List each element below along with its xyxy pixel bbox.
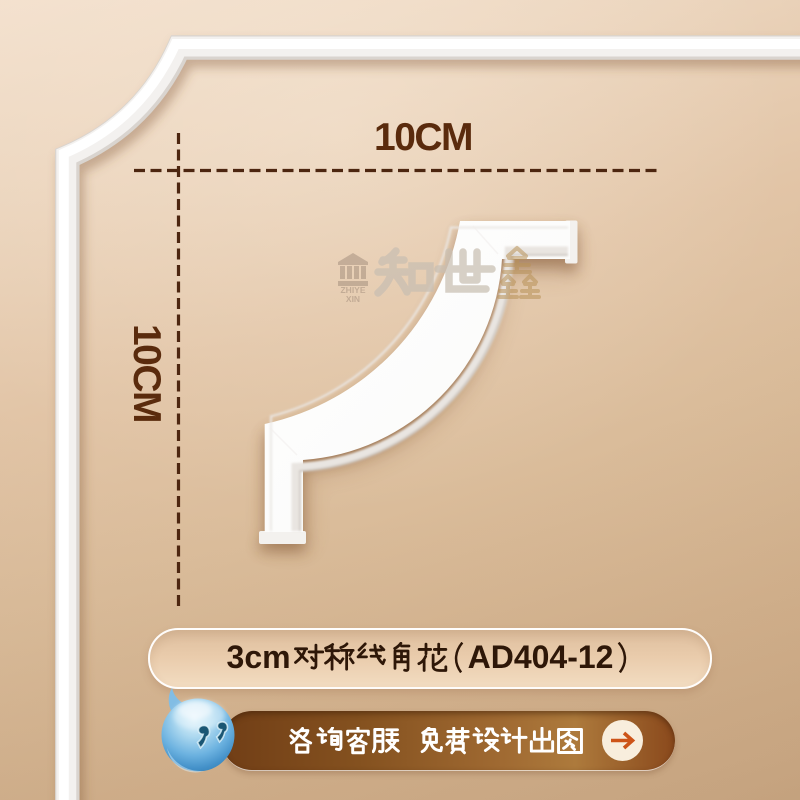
svg-text:XIN: XIN	[346, 294, 360, 303]
